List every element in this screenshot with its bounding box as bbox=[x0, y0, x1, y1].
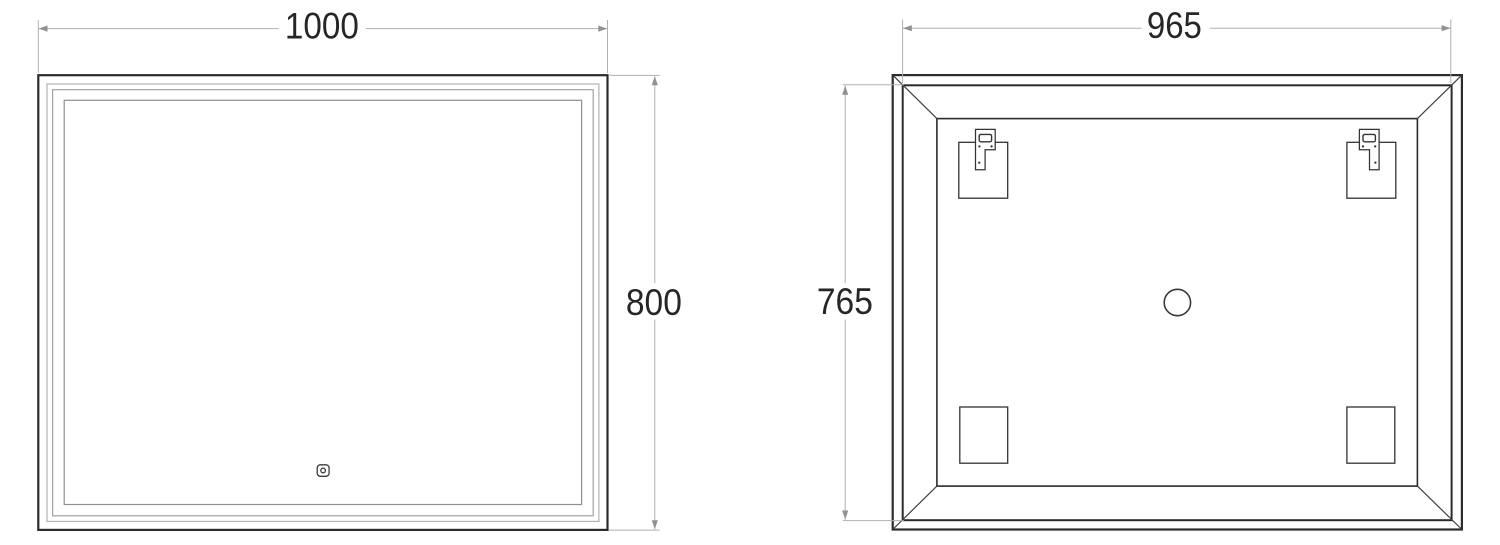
svg-text:765: 765 bbox=[817, 281, 873, 322]
svg-text:800: 800 bbox=[626, 282, 682, 323]
svg-text:965: 965 bbox=[1147, 5, 1202, 46]
svg-text:1000: 1000 bbox=[285, 6, 359, 47]
